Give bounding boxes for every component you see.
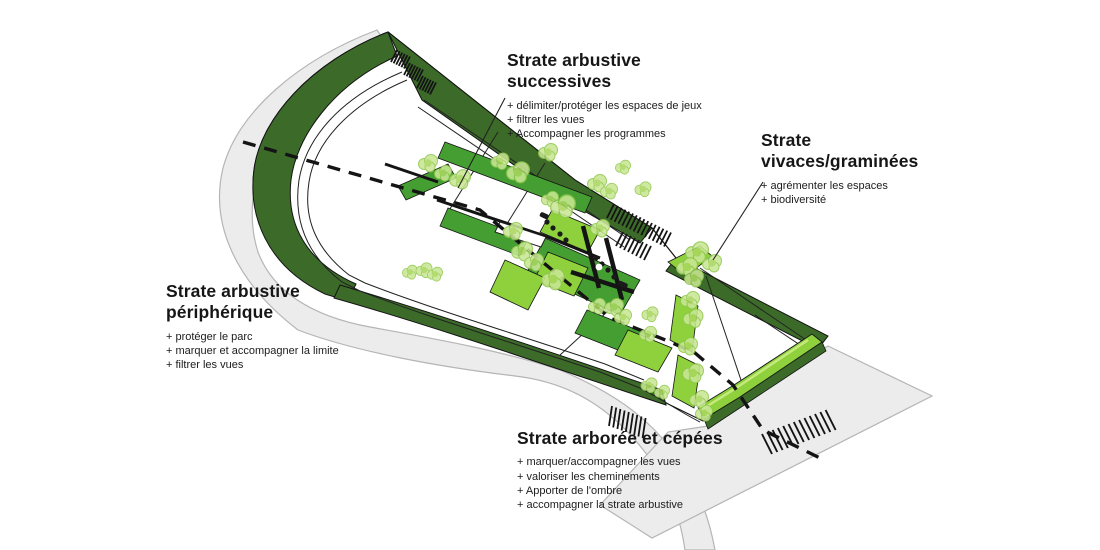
annotation-arbustive-successives: Strate arbustive successives + délimiter… [507, 50, 702, 142]
annotation-bullet: + filtrer les vues [166, 358, 339, 372]
annotation-bullet: + accompagner la strate arbustive [517, 498, 723, 512]
annotation-bullet: + protéger le parc [166, 330, 339, 344]
leader-line-vivaces [713, 182, 763, 260]
annotation-bullet: + marquer/accompagner les vues [517, 455, 723, 469]
tree-icon [539, 144, 558, 162]
annotation-bullet: + valoriser les cheminements [517, 470, 723, 484]
annotation-bullet: + Apporter de l'ombre [517, 484, 723, 498]
tree-icon [635, 182, 651, 197]
annotation-bullets: + protéger le parc + marquer et accompag… [166, 330, 339, 373]
annotation-vivaces-graminees: Strate vivaces/graminées + agrémenter le… [761, 130, 918, 207]
annotation-bullet: + biodiversité [761, 193, 918, 207]
annotation-title: Strate arbustive successives [507, 50, 702, 93]
annotation-bullets: + marquer/accompagner les vues + valoris… [517, 455, 723, 512]
landscape-strategy-diagram: { "diagram": { "type": "landscape-strate… [0, 0, 1100, 550]
annotation-bullets: + délimiter/protéger les espaces de jeux… [507, 99, 702, 142]
annotation-bullets: + agrémenter les espaces + biodiversité [761, 179, 918, 208]
annotation-bullet: + délimiter/protéger les espaces de jeux [507, 99, 702, 113]
diagram-stage: Strate arbustive successives + délimiter… [0, 0, 1100, 550]
annotation-bullet: + Accompagner les programmes [507, 127, 702, 141]
annotation-bullet: + agrémenter les espaces [761, 179, 918, 193]
annotation-title: Strate vivaces/graminées [761, 130, 918, 173]
annotation-arbustive-peripherique: Strate arbustive périphérique + protéger… [166, 281, 339, 373]
annotation-title: Strate arborée et cépées [517, 428, 723, 449]
annotation-bullet: + marquer et accompagner la limite [166, 344, 339, 358]
annotation-arboree-cepees: Strate arborée et cépées + marquer/accom… [517, 428, 723, 513]
annotation-title: Strate arbustive périphérique [166, 281, 339, 324]
tree-icon [615, 160, 630, 174]
annotation-bullet: + filtrer les vues [507, 113, 702, 127]
